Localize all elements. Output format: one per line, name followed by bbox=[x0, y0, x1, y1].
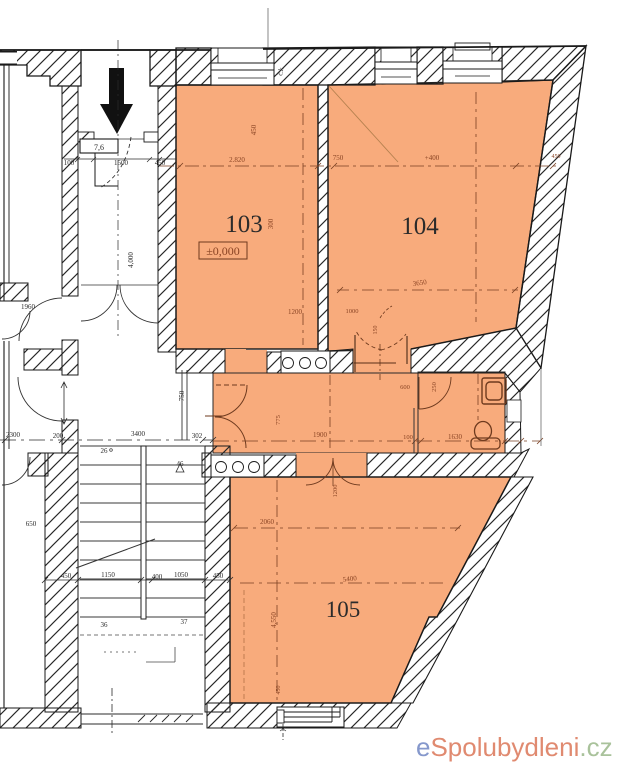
svg-text:750: 750 bbox=[178, 390, 186, 401]
svg-text:450: 450 bbox=[61, 572, 72, 580]
svg-text:7,6: 7,6 bbox=[94, 143, 104, 152]
svg-text:100: 100 bbox=[64, 159, 75, 167]
svg-text:eSpolubydleni.cz: eSpolubydleni.cz bbox=[416, 732, 613, 762]
svg-text:2300: 2300 bbox=[6, 431, 21, 439]
svg-text:1050: 1050 bbox=[174, 571, 189, 579]
svg-text:150: 150 bbox=[373, 326, 379, 335]
svg-text:1000: 1000 bbox=[346, 308, 359, 315]
svg-text:400: 400 bbox=[152, 573, 163, 581]
svg-text:105: 105 bbox=[326, 597, 361, 622]
svg-text:775: 775 bbox=[275, 415, 282, 425]
svg-text:302: 302 bbox=[192, 432, 203, 440]
svg-text:450: 450 bbox=[276, 686, 282, 695]
svg-text:450: 450 bbox=[552, 154, 561, 160]
svg-text:450: 450 bbox=[250, 124, 258, 135]
svg-text:100: 100 bbox=[403, 434, 413, 441]
svg-text:2.820: 2.820 bbox=[229, 156, 245, 164]
svg-text:104: 104 bbox=[401, 213, 439, 240]
svg-text:1200: 1200 bbox=[288, 308, 303, 316]
svg-text:250: 250 bbox=[431, 382, 438, 392]
svg-text:450: 450 bbox=[155, 159, 166, 167]
svg-text:±0,000: ±0,000 bbox=[206, 244, 240, 258]
svg-text:650: 650 bbox=[26, 520, 37, 528]
svg-text:4,000: 4,000 bbox=[127, 252, 135, 268]
svg-text:1150: 1150 bbox=[101, 571, 115, 579]
svg-text:1960: 1960 bbox=[21, 303, 36, 311]
svg-text:1900: 1900 bbox=[313, 431, 328, 439]
svg-text:4,550: 4,550 bbox=[270, 612, 278, 628]
svg-text:450: 450 bbox=[213, 572, 224, 580]
svg-text:26: 26 bbox=[101, 447, 109, 455]
svg-text:1630: 1630 bbox=[448, 433, 463, 441]
svg-text:+400: +400 bbox=[425, 154, 440, 162]
svg-text:3400: 3400 bbox=[131, 430, 146, 438]
svg-text:1200: 1200 bbox=[332, 485, 339, 498]
svg-text:750: 750 bbox=[333, 154, 344, 162]
svg-text:37: 37 bbox=[181, 618, 189, 626]
svg-text:200: 200 bbox=[53, 432, 64, 440]
svg-text:36: 36 bbox=[101, 621, 109, 629]
svg-text:5400: 5400 bbox=[342, 574, 357, 583]
svg-text:300: 300 bbox=[267, 218, 275, 229]
svg-text:1500: 1500 bbox=[114, 159, 129, 167]
svg-text:103: 103 bbox=[225, 211, 263, 238]
svg-text:2060: 2060 bbox=[260, 518, 275, 526]
svg-text:600: 600 bbox=[400, 384, 410, 391]
